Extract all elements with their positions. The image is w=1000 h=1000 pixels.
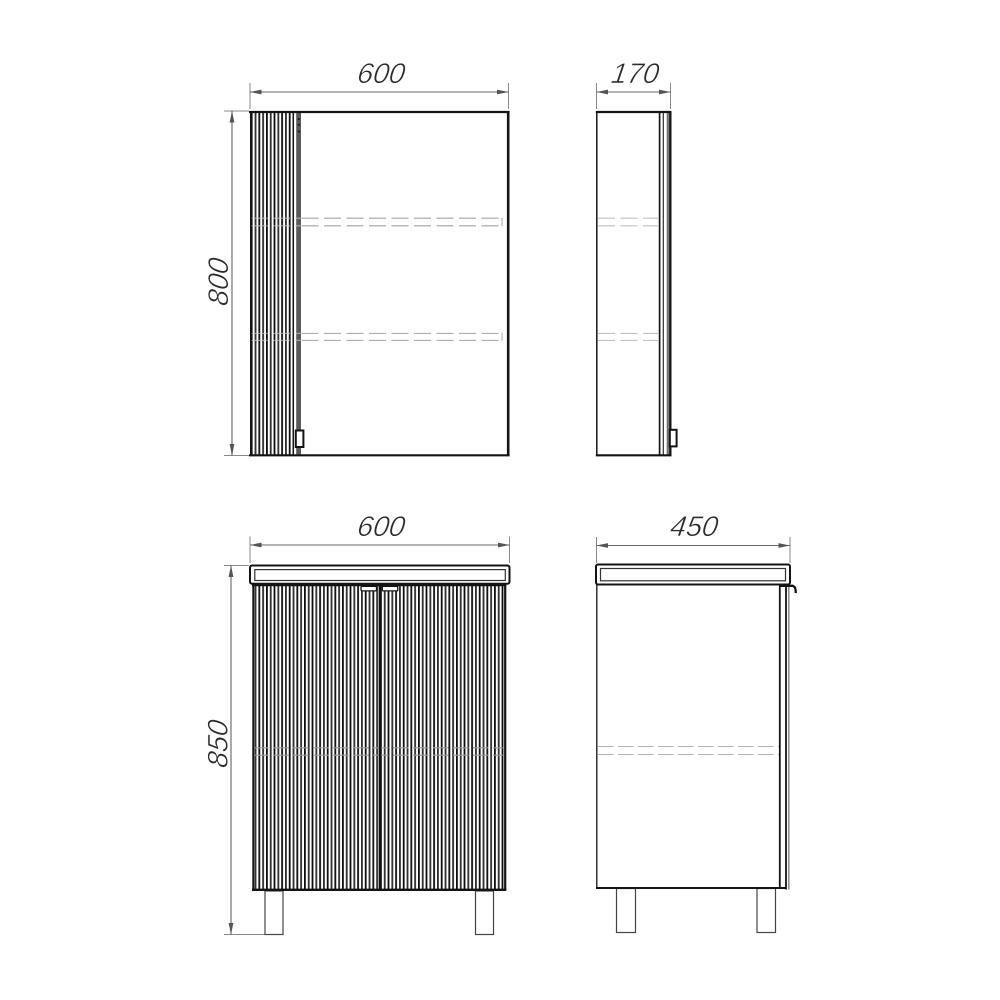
svg-text:170: 170 <box>609 58 661 90</box>
svg-text:450: 450 <box>668 511 720 543</box>
svg-text:850: 850 <box>203 718 235 770</box>
svg-text:600: 600 <box>355 511 407 543</box>
svg-text:800: 800 <box>203 256 235 308</box>
svg-text:600: 600 <box>355 58 407 90</box>
